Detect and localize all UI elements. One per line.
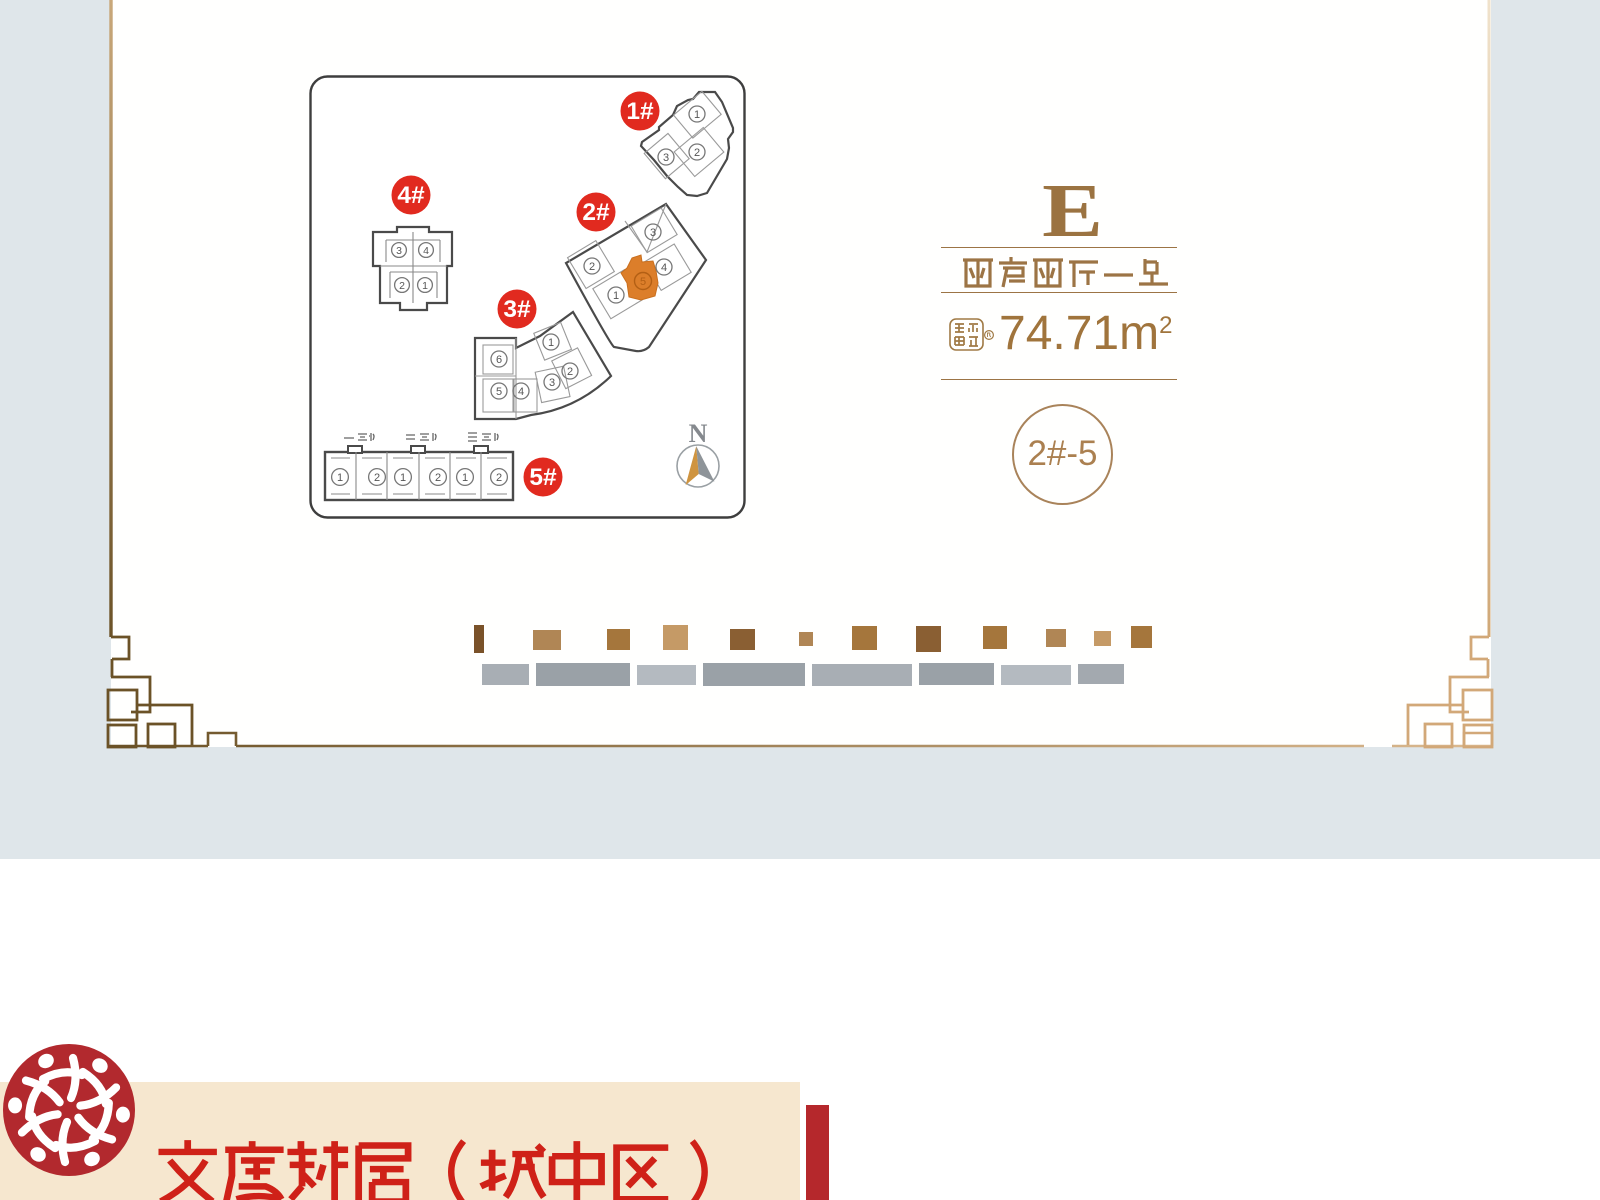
svg-text:4: 4: [518, 386, 524, 398]
svg-text:2: 2: [496, 472, 502, 484]
svg-text:3: 3: [650, 227, 656, 239]
svg-text:4: 4: [661, 262, 667, 274]
svg-text:5: 5: [496, 386, 502, 398]
svg-text:N: N: [689, 419, 708, 448]
svg-text:3: 3: [549, 377, 555, 389]
svg-text:3: 3: [396, 245, 402, 257]
svg-text:5#: 5#: [529, 464, 557, 491]
svg-text:5: 5: [640, 276, 646, 288]
svg-text:1: 1: [548, 337, 554, 349]
svg-text:6: 6: [496, 354, 502, 366]
svg-text:1: 1: [613, 290, 619, 302]
svg-text:3: 3: [663, 152, 669, 164]
svg-text:1#: 1#: [626, 98, 654, 125]
svg-text:1: 1: [422, 280, 428, 292]
svg-text:2: 2: [589, 261, 595, 273]
svg-text:2: 2: [435, 472, 441, 484]
svg-text:2: 2: [374, 472, 380, 484]
svg-text:4: 4: [423, 245, 429, 257]
svg-text:1: 1: [694, 109, 700, 121]
svg-text:1: 1: [400, 472, 406, 484]
svg-text:3#: 3#: [503, 296, 531, 323]
svg-text:1: 1: [337, 472, 343, 484]
svg-text:1: 1: [462, 472, 468, 484]
svg-text:2: 2: [567, 366, 573, 378]
svg-text:4#: 4#: [397, 182, 425, 209]
svg-text:2: 2: [694, 147, 700, 159]
svg-text:2: 2: [399, 280, 405, 292]
svg-text:2#: 2#: [582, 199, 610, 226]
